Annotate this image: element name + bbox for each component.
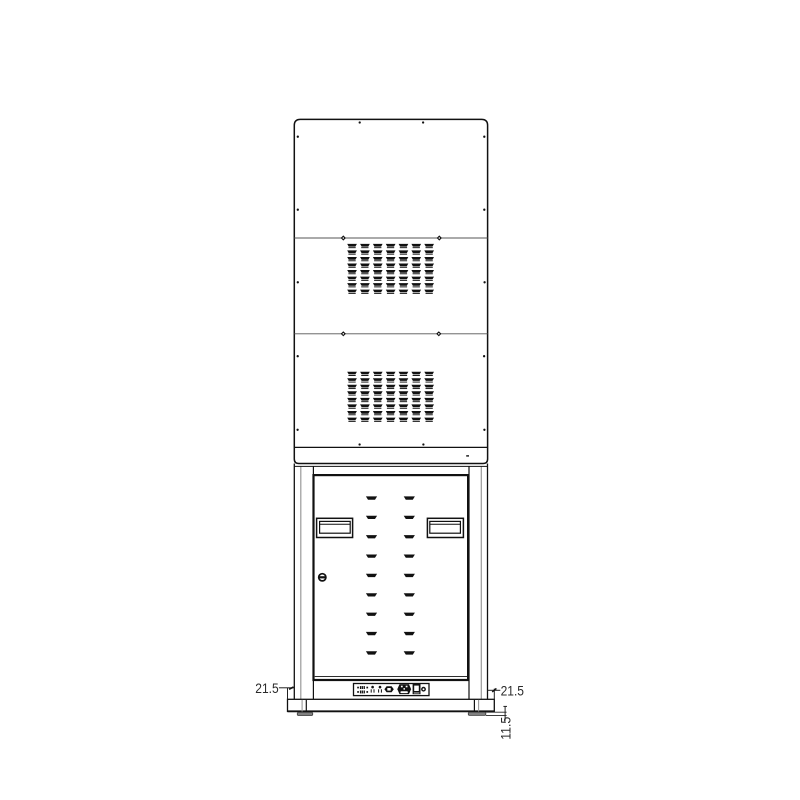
svg-text:21.5: 21.5 — [501, 684, 524, 699]
svg-text:11.5: 11.5 — [498, 717, 513, 740]
svg-text:21.5: 21.5 — [255, 681, 278, 696]
